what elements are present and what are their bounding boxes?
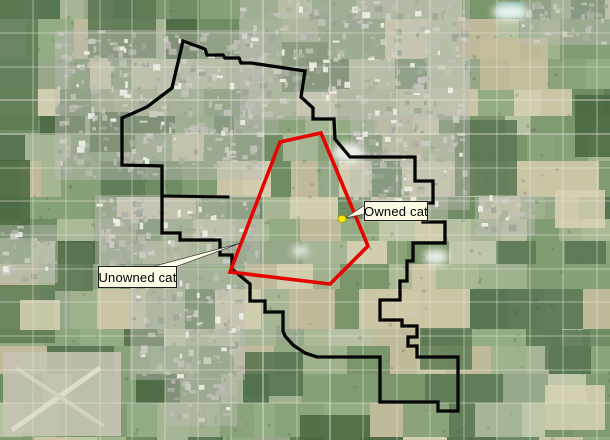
owned-cat-marker (338, 215, 346, 222)
owned-cat-label-text: Owned cat (364, 204, 428, 219)
owned-cat-label: Owned cat (364, 201, 428, 221)
city-boundary-spur (163, 196, 228, 197)
unowned-cat-label: Unowned cat (98, 266, 177, 288)
map-figure: Owned cat Unowned cat (0, 0, 610, 440)
aerial-satellite-map (0, 0, 610, 440)
unowned-cat-label-text: Unowned cat (98, 270, 176, 285)
